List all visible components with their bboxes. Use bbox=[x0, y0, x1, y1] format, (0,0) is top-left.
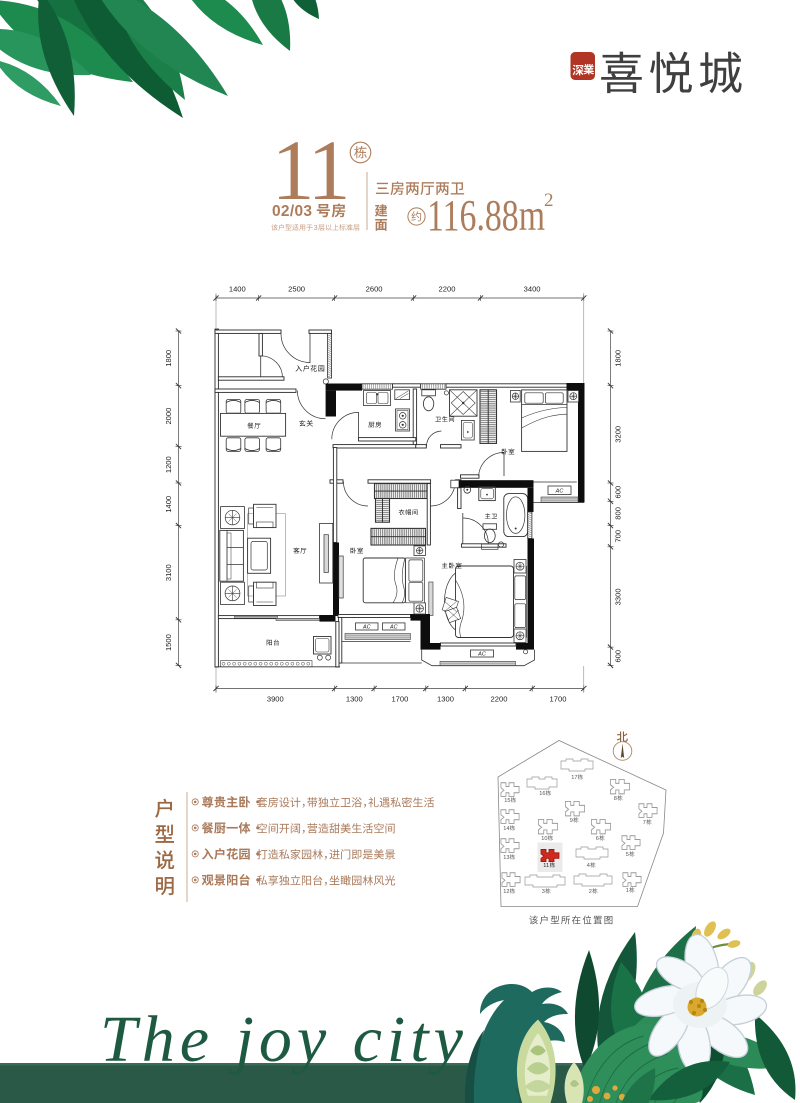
svg-text:7: 7 bbox=[643, 820, 646, 826]
svg-text:6: 6 bbox=[596, 836, 599, 842]
svg-text:16: 16 bbox=[539, 791, 545, 797]
svg-text:1500: 1500 bbox=[164, 634, 173, 651]
svg-text:AC: AC bbox=[555, 488, 564, 494]
svg-text:11: 11 bbox=[543, 863, 549, 869]
svg-text:3: 3 bbox=[314, 223, 318, 232]
svg-text:02/03: 02/03 bbox=[272, 203, 312, 220]
svg-text:5: 5 bbox=[626, 852, 629, 858]
svg-text:14: 14 bbox=[503, 826, 509, 832]
svg-text:1800: 1800 bbox=[164, 350, 173, 367]
svg-text:3: 3 bbox=[542, 889, 545, 895]
svg-text:2200: 2200 bbox=[439, 285, 456, 294]
svg-text:9: 9 bbox=[570, 818, 573, 824]
svg-text:8: 8 bbox=[614, 796, 617, 802]
svg-text:3400: 3400 bbox=[524, 285, 541, 294]
svg-text:12: 12 bbox=[503, 889, 509, 895]
svg-text:2500: 2500 bbox=[288, 285, 305, 294]
svg-text:1200: 1200 bbox=[164, 456, 173, 473]
svg-text:2: 2 bbox=[544, 190, 554, 211]
svg-text:1700: 1700 bbox=[391, 695, 408, 704]
svg-text:116.88m: 116.88m bbox=[427, 191, 545, 240]
svg-text:2: 2 bbox=[589, 889, 592, 895]
svg-text:3300: 3300 bbox=[614, 588, 623, 605]
svg-text:3900: 3900 bbox=[267, 695, 284, 704]
svg-text:800: 800 bbox=[614, 507, 623, 520]
svg-text:2600: 2600 bbox=[366, 285, 383, 294]
svg-text:The joy city: The joy city bbox=[100, 1003, 468, 1076]
svg-text:AC: AC bbox=[389, 625, 398, 631]
svg-text:3100: 3100 bbox=[164, 564, 173, 581]
svg-text:10: 10 bbox=[541, 836, 547, 842]
svg-text:1: 1 bbox=[626, 888, 629, 894]
svg-text:17: 17 bbox=[571, 775, 577, 781]
svg-text:1400: 1400 bbox=[164, 496, 173, 513]
svg-text:700: 700 bbox=[614, 530, 623, 543]
svg-text:1300: 1300 bbox=[346, 695, 363, 704]
svg-text:600: 600 bbox=[614, 650, 623, 663]
svg-text:2200: 2200 bbox=[491, 695, 508, 704]
svg-text:AC: AC bbox=[362, 625, 371, 631]
svg-text:3200: 3200 bbox=[614, 426, 623, 443]
svg-text:1: 1 bbox=[308, 122, 351, 218]
svg-text:4: 4 bbox=[587, 863, 590, 869]
svg-text:AC: AC bbox=[477, 652, 486, 658]
svg-text:1800: 1800 bbox=[614, 350, 623, 367]
svg-text:2000: 2000 bbox=[164, 408, 173, 425]
svg-text:1400: 1400 bbox=[229, 285, 246, 294]
svg-text:15: 15 bbox=[504, 798, 510, 804]
svg-text:600: 600 bbox=[614, 486, 623, 499]
svg-text:1700: 1700 bbox=[550, 695, 567, 704]
svg-text:1300: 1300 bbox=[437, 695, 454, 704]
svg-text:13: 13 bbox=[503, 855, 509, 861]
